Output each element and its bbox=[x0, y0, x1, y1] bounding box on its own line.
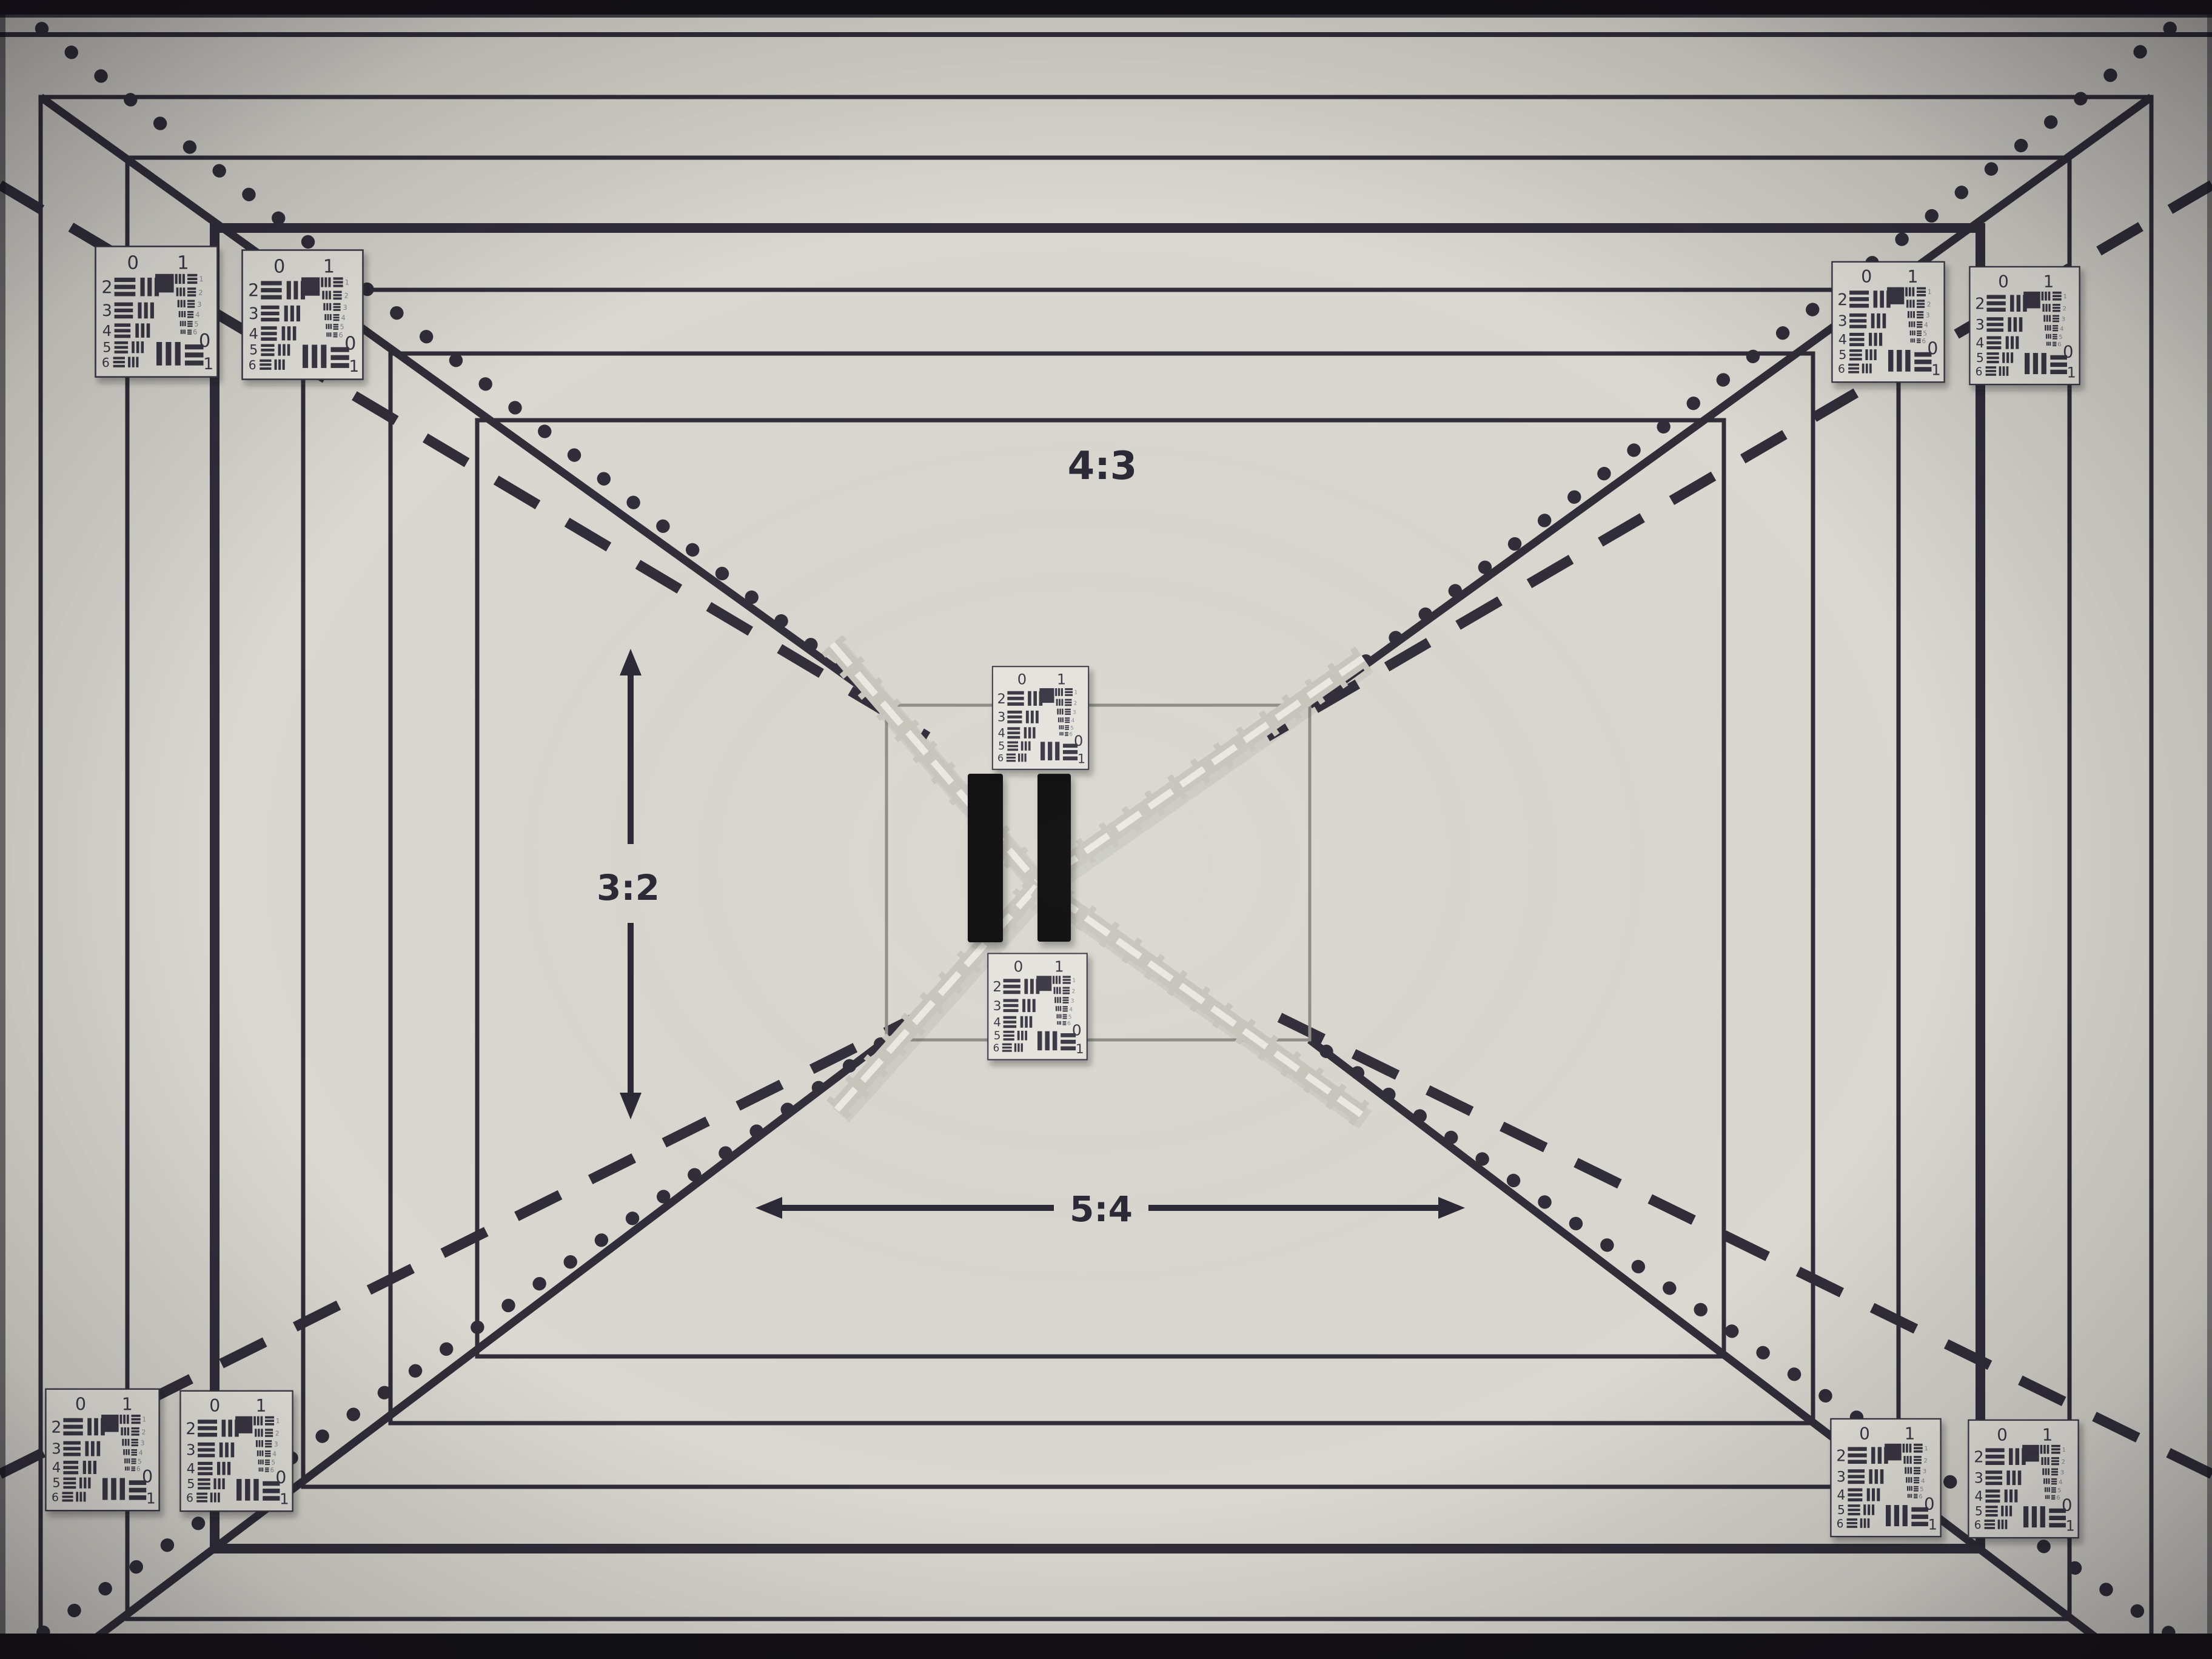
top-dark-band bbox=[0, 0, 2212, 16]
usaf-target-bottom-left-a bbox=[45, 1389, 159, 1510]
aspect-label-4-3: 4:3 bbox=[1068, 444, 1138, 489]
usaf-target-top-left-a bbox=[96, 246, 218, 377]
usaf-target-center-lower bbox=[988, 953, 1087, 1059]
usaf-target-top-left-b bbox=[243, 250, 363, 379]
chart-top-edge-highlight bbox=[0, 15, 2212, 18]
usaf-target-bottom-right-a bbox=[1831, 1419, 1940, 1537]
left-dark-edge bbox=[0, 0, 5, 1659]
black-velvet-patch-left bbox=[968, 774, 1003, 942]
right-dark-edge bbox=[2207, 0, 2212, 1659]
black-velvet-patch-right bbox=[1037, 774, 1071, 942]
aspect-label-5-4: 5:4 bbox=[1070, 1188, 1133, 1230]
usaf-target-top-right-b bbox=[1969, 267, 2079, 384]
usaf-target-top-right-a bbox=[1832, 262, 1944, 382]
test-chart-photo: 0 1 2 3 4 5 bbox=[0, 0, 2212, 1659]
usaf-target-bottom-left-b bbox=[180, 1391, 292, 1511]
usaf-target-center-upper bbox=[993, 666, 1088, 769]
aspect-label-3-2: 3:2 bbox=[597, 867, 660, 908]
bottom-dark-band bbox=[0, 1634, 2212, 1659]
usaf-target-bottom-right-b bbox=[1968, 1420, 2078, 1538]
